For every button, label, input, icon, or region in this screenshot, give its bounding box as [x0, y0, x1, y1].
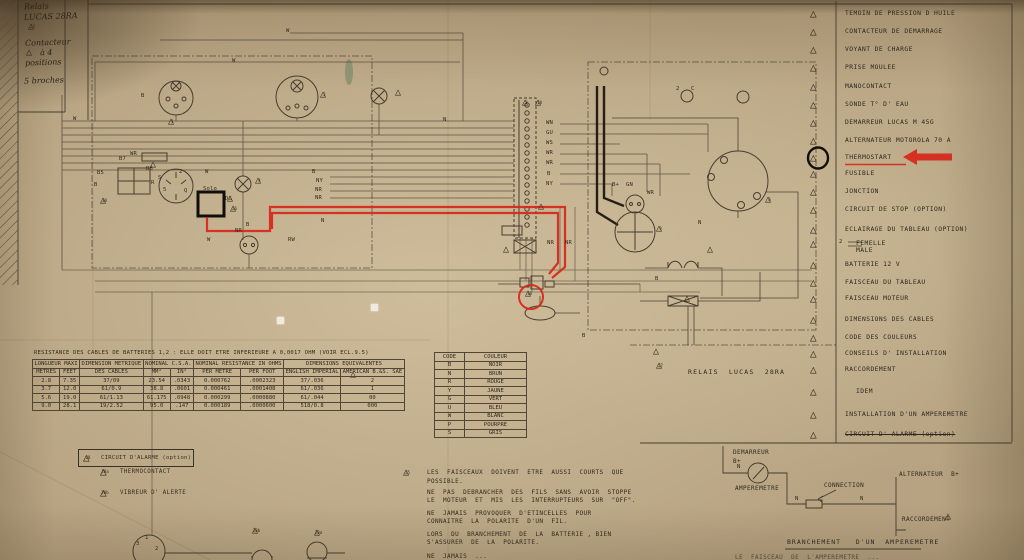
table-row: LONGUEUR MAXI DIMENSION METRIQUE NOMINAL…	[33, 360, 405, 369]
battery-cables	[597, 86, 624, 225]
table-row: UBLEU	[435, 404, 527, 413]
table-header: FEET	[60, 368, 80, 377]
table-cell: .0948	[170, 394, 193, 403]
table-header: ENGLISH IMPERIAL	[284, 368, 341, 377]
marker-annotations	[198, 148, 828, 217]
table-row: NBRUN	[435, 370, 527, 379]
table-header: PER FOOT	[241, 368, 284, 377]
table-cell: 37/09	[80, 377, 144, 386]
table-row: 2.87.3537/0923.54.03430.000762.000232337…	[33, 377, 405, 386]
table-row: CODE COULEUR	[435, 353, 527, 362]
warning-triangle-icon: 28	[79, 452, 95, 464]
table-cell: S	[435, 429, 465, 438]
table-cell: 000	[341, 402, 405, 411]
table-cell: 61/.044	[284, 394, 341, 403]
table-cell: 38.8	[143, 385, 170, 394]
table-cell: 00	[341, 394, 405, 403]
table-header: DIMENSIONS EQUIVALENTES	[284, 360, 405, 369]
table-cell: 2.8	[33, 377, 60, 386]
table-header: MM²	[143, 368, 170, 377]
table-header: IN²	[170, 368, 193, 377]
table-cell: W	[435, 412, 465, 421]
table-cell: JAUNE	[465, 387, 527, 396]
table-cell: B	[435, 361, 465, 370]
left-hatch-strip	[0, 0, 18, 285]
table-cell: 61/0.9	[80, 385, 144, 394]
table-cell: 3.7	[33, 385, 60, 394]
table-cell: BLEU	[465, 404, 527, 413]
table-header: DES CABLES	[80, 368, 144, 377]
table-header: LONGUEUR MAXI	[33, 360, 80, 369]
cable-table: LONGUEUR MAXI DIMENSION METRIQUE NOMINAL…	[32, 359, 405, 411]
white-artifact	[277, 317, 284, 324]
section-frames	[92, 56, 836, 345]
table-row: PPOURPRE	[435, 421, 527, 430]
green-stain	[345, 59, 353, 85]
red-highlight-wires	[207, 149, 952, 309]
table-row: SGRIS	[435, 429, 527, 438]
table-cell: P	[435, 421, 465, 430]
table-cell: VERT	[465, 395, 527, 404]
table-cell: 12.0	[60, 385, 80, 394]
schematic-linework	[0, 0, 1024, 560]
table-cell: 61.175	[143, 394, 170, 403]
table-cell: 0.000762	[194, 377, 241, 386]
table-header: PER METRE	[194, 368, 241, 377]
components	[118, 67, 921, 560]
relais-lucas-label: RELAIS LUCAS 28RA	[688, 368, 785, 376]
table-cell: 518/0.8	[284, 402, 341, 411]
table-header: DIMENSION METRIQUE	[80, 360, 144, 369]
table-cell: 2	[341, 377, 405, 386]
red-arrow-icon	[903, 149, 952, 165]
table-cell: 0.000461	[194, 385, 241, 394]
cable-table-title: RESISTANCE DES CABLES DE BATTERIES 1,2 :…	[34, 350, 369, 356]
table-cell: 37/.036	[284, 377, 341, 386]
table-row: YJAUNE	[435, 387, 527, 396]
table-row: 3.712.061/0.938.8.06010.000461.000140861…	[33, 385, 405, 394]
table-cell: .0001408	[241, 385, 284, 394]
table-cell: ROUGE	[465, 378, 527, 387]
table-header: NOMINAL RESISTANCE IN OHMS	[194, 360, 284, 369]
table-cell: 0.000299	[194, 394, 241, 403]
table-cell: .0601	[170, 385, 193, 394]
table-row: 9.028.119/2.5295.0.1470.000189.000060051…	[33, 402, 405, 411]
table-cell: 61/.036	[284, 385, 341, 394]
table-cell: BLANC	[465, 412, 527, 421]
alarm-box-label: CIRCUIT D'ALARME (option)	[95, 455, 191, 461]
table-cell: .0343	[170, 377, 193, 386]
table-cell: 61/1.13	[80, 394, 144, 403]
table-cell: GRIS	[465, 429, 527, 438]
table-cell: 0.000189	[194, 402, 241, 411]
table-header: AMERICAN B.&S. SAE	[341, 368, 405, 377]
marker-circle-legend	[808, 148, 828, 169]
table-cell: NOIR	[465, 361, 527, 370]
table-cell: BRUN	[465, 370, 527, 379]
alarm-circuit-box: 28 CIRCUIT D'ALARME (option)	[78, 449, 194, 467]
table-cell: N	[435, 370, 465, 379]
table-row: 5.619.061/1.1361.175.09480.000299.000088…	[33, 394, 405, 403]
table-cell: POURPRE	[465, 421, 527, 430]
table-row: GVERT	[435, 395, 527, 404]
color-code-table: CODE COULEUR BNOIRNBRUNRROUGEYJAUNEGVERT…	[434, 352, 527, 438]
table-cell: 9.0	[33, 402, 60, 411]
table-cell: R	[435, 378, 465, 387]
table-cell: 19.0	[60, 394, 80, 403]
table-cell: 5.6	[33, 394, 60, 403]
table-cell: .147	[170, 402, 193, 411]
table-header: NOMINAL C.S.A.	[143, 360, 193, 369]
table-row: WBLANC	[435, 412, 527, 421]
table-row: RROUGE	[435, 378, 527, 387]
table-cell: .0000880	[241, 394, 284, 403]
table-cell: Y	[435, 387, 465, 396]
table-cell: 19/2.52	[80, 402, 144, 411]
marker-box	[198, 192, 224, 216]
table-cell: 28.1	[60, 402, 80, 411]
table-cell: 1	[341, 385, 405, 394]
table-cell: 7.35	[60, 377, 80, 386]
table-cell: .0002323	[241, 377, 284, 386]
paper-creases	[0, 0, 650, 560]
table-cell: .0000600	[241, 402, 284, 411]
table-cell: 23.54	[143, 377, 170, 386]
white-artifact	[371, 304, 378, 311]
table-row: METRES FEET DES CABLES MM² IN² PER METRE…	[33, 368, 405, 377]
wiring-diagram-photo: Relais LUCAS 28RA 23 Contacteur à 4 posi…	[0, 0, 1024, 560]
table-cell: 95.0	[143, 402, 170, 411]
table-header: CODE	[435, 353, 465, 362]
table-header: COULEUR	[465, 353, 527, 362]
table-row: BNOIR	[435, 361, 527, 370]
table-header: METRES	[33, 368, 60, 377]
table-cell: G	[435, 395, 465, 404]
table-cell: U	[435, 404, 465, 413]
